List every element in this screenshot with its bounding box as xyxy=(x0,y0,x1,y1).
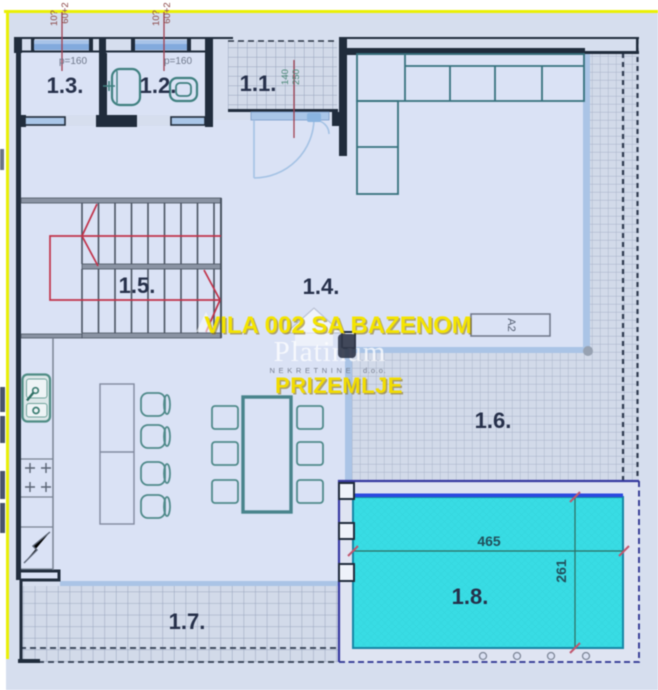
svg-text:PRIZEMLJE: PRIZEMLJE xyxy=(275,373,403,398)
svg-text:p=160: p=160 xyxy=(59,56,88,67)
svg-text:261: 261 xyxy=(553,559,569,583)
svg-text:465: 465 xyxy=(477,533,501,549)
svg-text:140: 140 xyxy=(280,69,291,85)
svg-text:1.3.: 1.3. xyxy=(47,73,84,98)
svg-text:1.2.: 1.2. xyxy=(140,73,177,98)
svg-text:1.6.: 1.6. xyxy=(475,408,512,433)
svg-text:250: 250 xyxy=(291,69,302,85)
svg-text:VILA 002 SA BAZENOM: VILA 002 SA BAZENOM xyxy=(204,312,472,339)
svg-text:10?: 10? xyxy=(151,10,162,26)
svg-text:1.8.: 1.8. xyxy=(452,584,489,609)
svg-text:p=160: p=160 xyxy=(164,56,193,67)
svg-text:1.5.: 1.5. xyxy=(119,273,156,298)
svg-text:10?: 10? xyxy=(49,10,60,26)
svg-text:1.4.: 1.4. xyxy=(303,274,340,299)
svg-text:1.1.: 1.1. xyxy=(240,71,277,96)
svg-text:60+2: 60+2 xyxy=(60,2,71,23)
svg-text:A2: A2 xyxy=(505,318,517,331)
svg-text:Platinum: Platinum xyxy=(274,336,387,368)
svg-text:60+2: 60+2 xyxy=(162,2,173,23)
svg-text:1.7.: 1.7. xyxy=(169,609,206,634)
